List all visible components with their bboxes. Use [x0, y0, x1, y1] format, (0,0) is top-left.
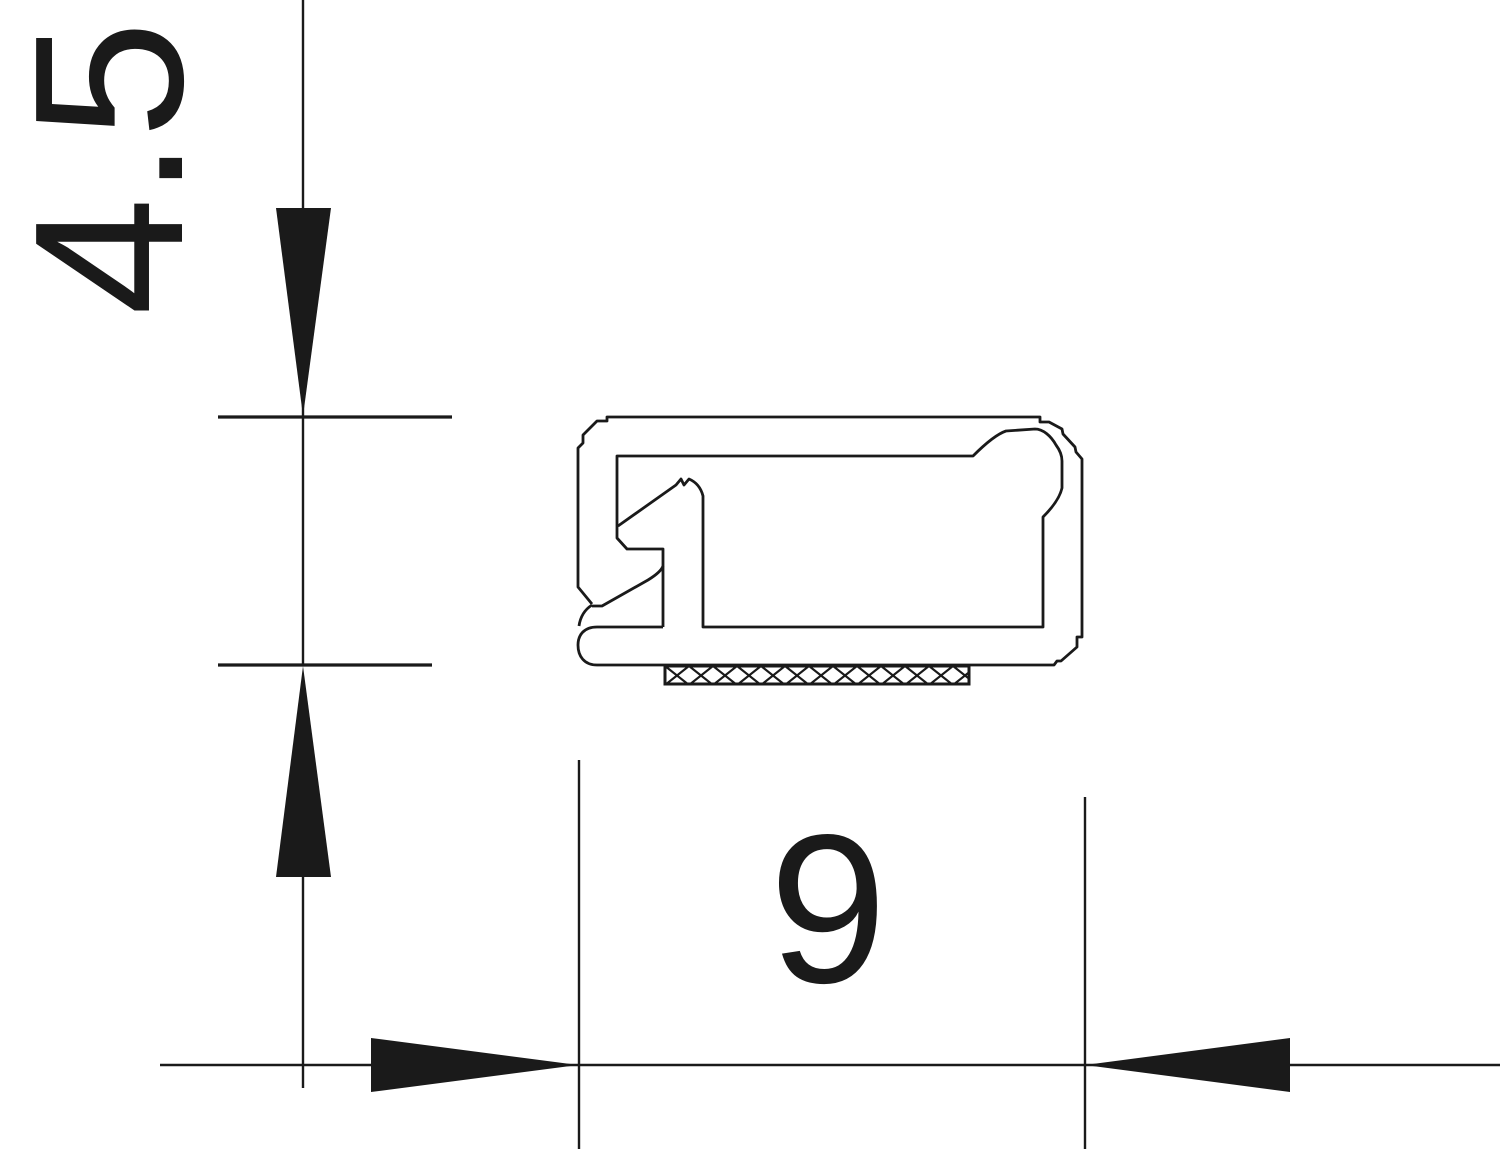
width-dimension-label: 9 — [769, 790, 887, 1027]
technical-drawing-canvas: 4.5 9 — [0, 0, 1500, 1149]
technical-drawing: 4.5 9 — [0, 0, 1500, 1149]
arrow-up-icon — [276, 666, 331, 877]
profile-hook-slit-outline — [592, 566, 663, 606]
arrow-down-icon — [276, 208, 331, 416]
profile-inner-cavity-outline — [617, 429, 1062, 627]
height-dimension-label: 4.5 — [0, 21, 227, 316]
profile-slot-mouth-curve — [579, 605, 592, 626]
arrow-right-icon — [371, 1038, 578, 1092]
profile-cross-section — [578, 417, 1082, 665]
horizontal-dimension: 9 — [160, 760, 1500, 1149]
vertical-dimension: 4.5 — [0, 0, 452, 1088]
arrow-left-icon — [1085, 1038, 1290, 1092]
tape-crosshatch-fill — [665, 666, 969, 684]
adhesive-tape-strip — [665, 666, 969, 684]
